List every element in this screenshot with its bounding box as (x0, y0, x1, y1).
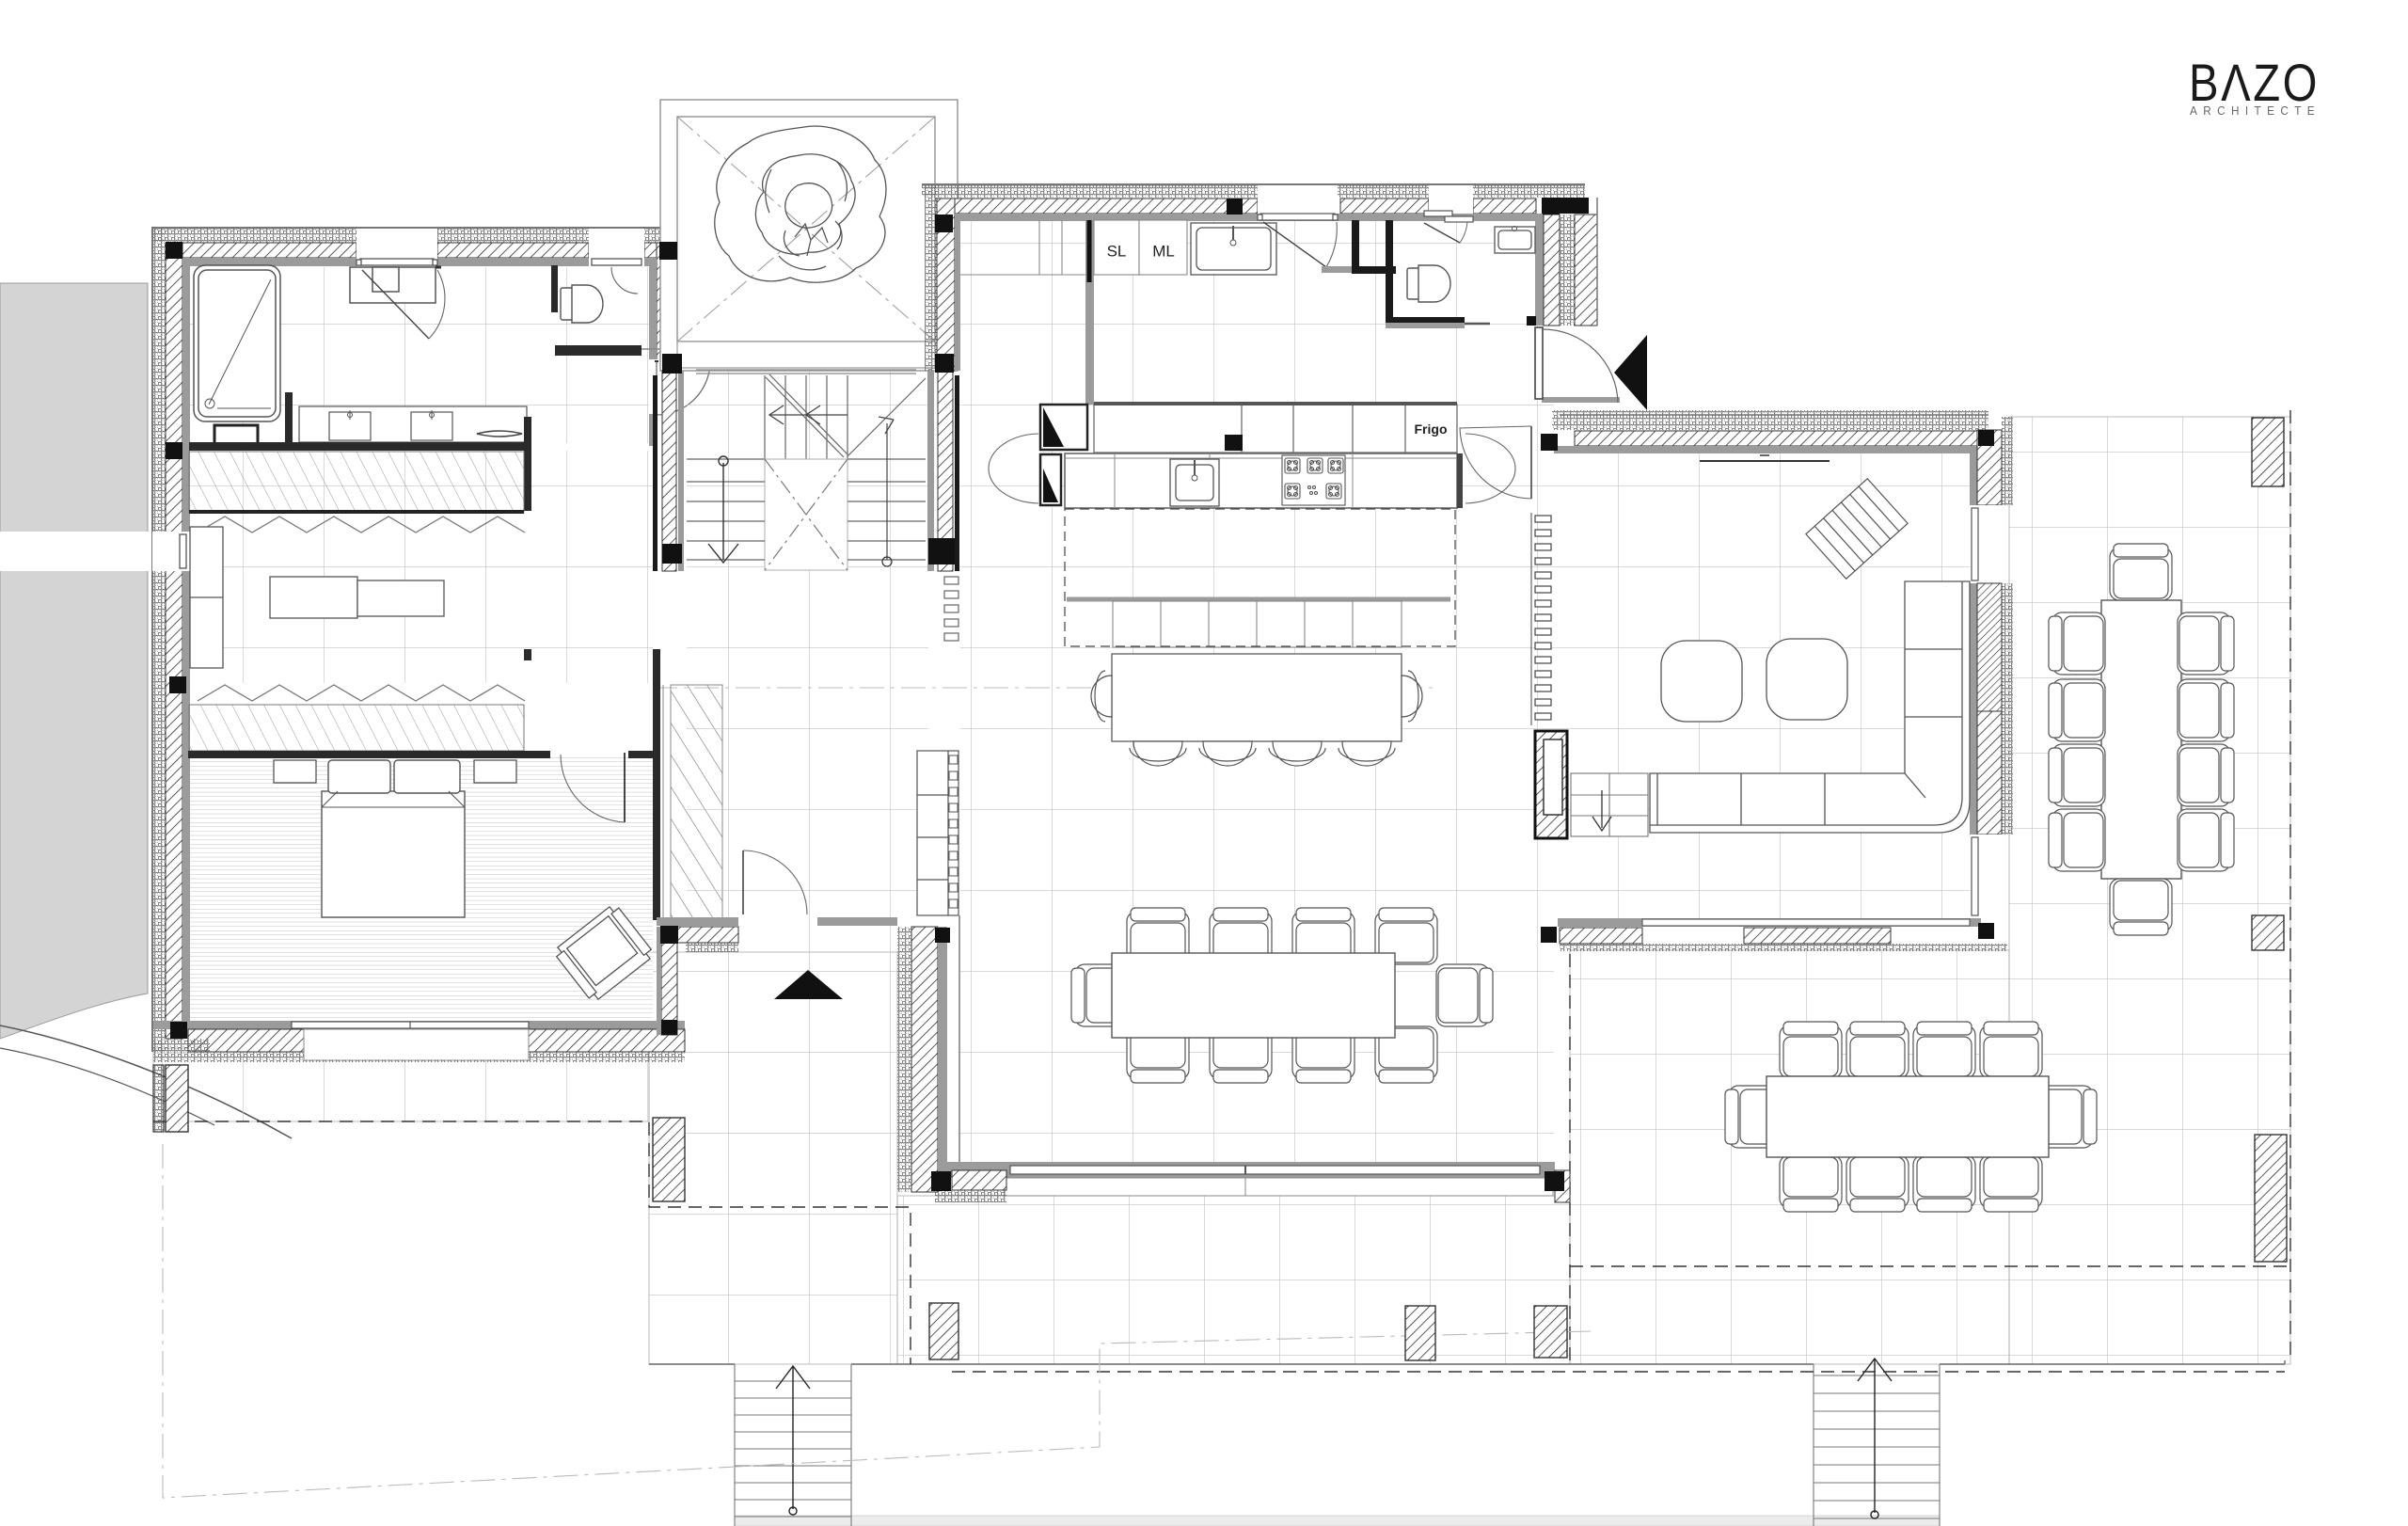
svg-text:ARCHITECTE: ARCHITECTE (2190, 104, 2321, 118)
svg-text:SL: SL (1107, 242, 1127, 260)
svg-text:Frigo: Frigo (1415, 421, 1448, 437)
svg-text:ML: ML (1152, 242, 1175, 260)
svg-text:BΛZO: BΛZO (2189, 53, 2320, 112)
